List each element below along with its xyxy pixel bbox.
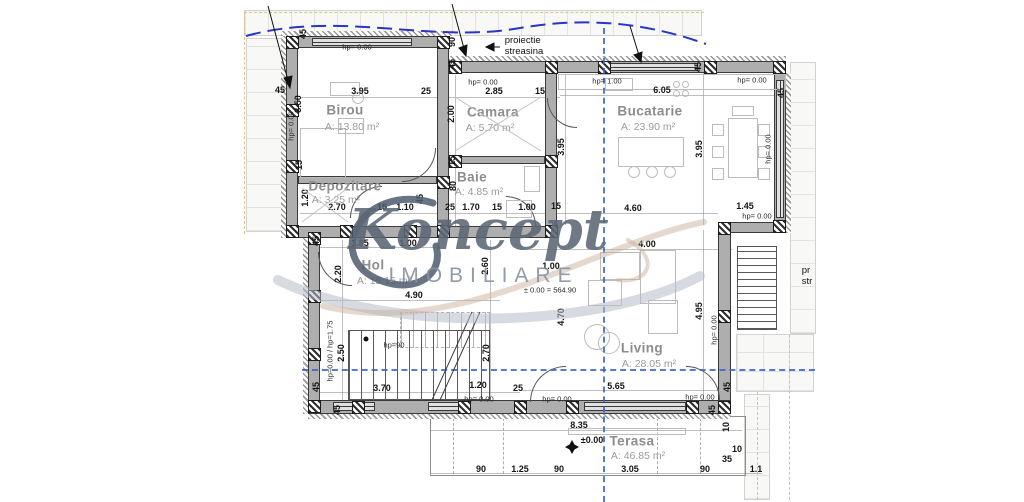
roof-projection-curve <box>246 22 706 44</box>
annotation-overlay <box>0 0 1024 502</box>
shelving-cross-lines <box>302 97 541 222</box>
stair-start-marker <box>364 337 369 342</box>
level-star-marker <box>565 440 579 454</box>
leader-arrows <box>268 4 642 88</box>
stair-break-line <box>432 312 480 400</box>
floor-plan: 45hp= 0.00proiectie streasina3.95259045h… <box>0 0 1024 502</box>
